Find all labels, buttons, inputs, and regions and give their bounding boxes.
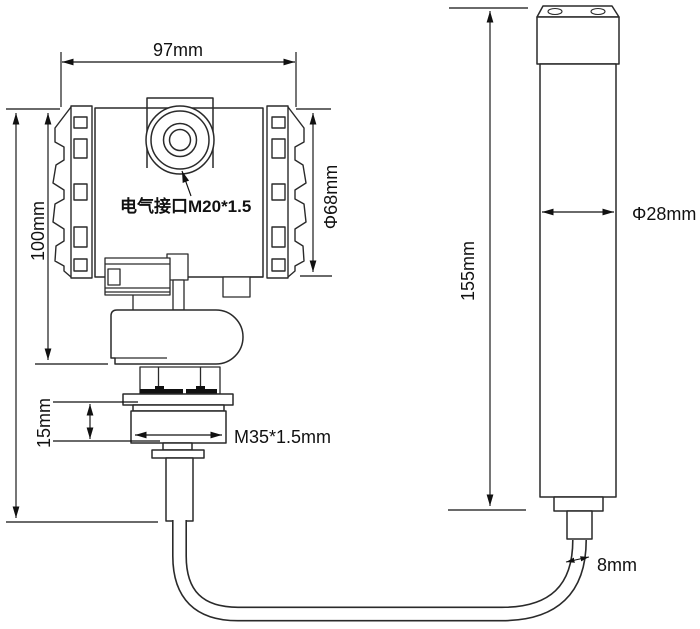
label-diameter-68mm: Φ68mm [321,165,341,229]
technical-drawing-canvas: 97mm 100mm 电气接口M20*1.5 Φ68mm 15mm M35*1.… [0,0,700,629]
hex-bolt-section [140,367,220,394]
label-probe-diameter-28mm: Φ28mm [632,204,696,224]
right-flange [267,106,306,278]
probe-cap-top [537,6,619,17]
thread-cylinder [131,411,226,443]
label-width-97mm: 97mm [153,40,203,60]
probe-step [554,497,603,511]
mounting-plate [123,394,233,405]
label-thread-spec-m35: M35*1.5mm [234,427,331,447]
level-transmitter-dimension-drawing: 97mm 100mm 电气接口M20*1.5 Φ68mm 15mm M35*1.… [0,0,700,629]
thread-neck [163,443,192,450]
cable-collar [152,450,204,458]
dimension-lines [6,8,614,562]
label-thread-length-15mm: 15mm [34,398,54,448]
probe-neck [567,511,592,539]
joint-pill [111,310,243,364]
thread-assembly [123,394,233,521]
probe-body [540,64,616,497]
cable-outline [180,520,580,614]
bracket-slot [108,269,120,285]
label-electrical-port: 电气接口M20*1.5 [120,196,251,216]
probe-cap [537,17,619,64]
probe [537,6,619,539]
left-flange [53,106,92,278]
left-flange-profile [53,107,71,277]
cable [180,520,580,614]
transmitter-housing [53,98,306,278]
process-connection [111,310,243,364]
label-cable-diameter-8mm: 8mm [597,555,637,575]
bracket-stem [173,280,184,310]
device-artwork [53,6,619,614]
label-height-100mm: 100mm [28,201,48,261]
right-flange-profile [288,107,306,277]
cable-core [180,520,580,614]
bracket-step [223,277,250,297]
label-probe-length-155mm: 155mm [458,241,478,301]
plate-step [133,405,224,411]
cable-stem [166,458,193,521]
port-circle-outer [146,106,214,174]
